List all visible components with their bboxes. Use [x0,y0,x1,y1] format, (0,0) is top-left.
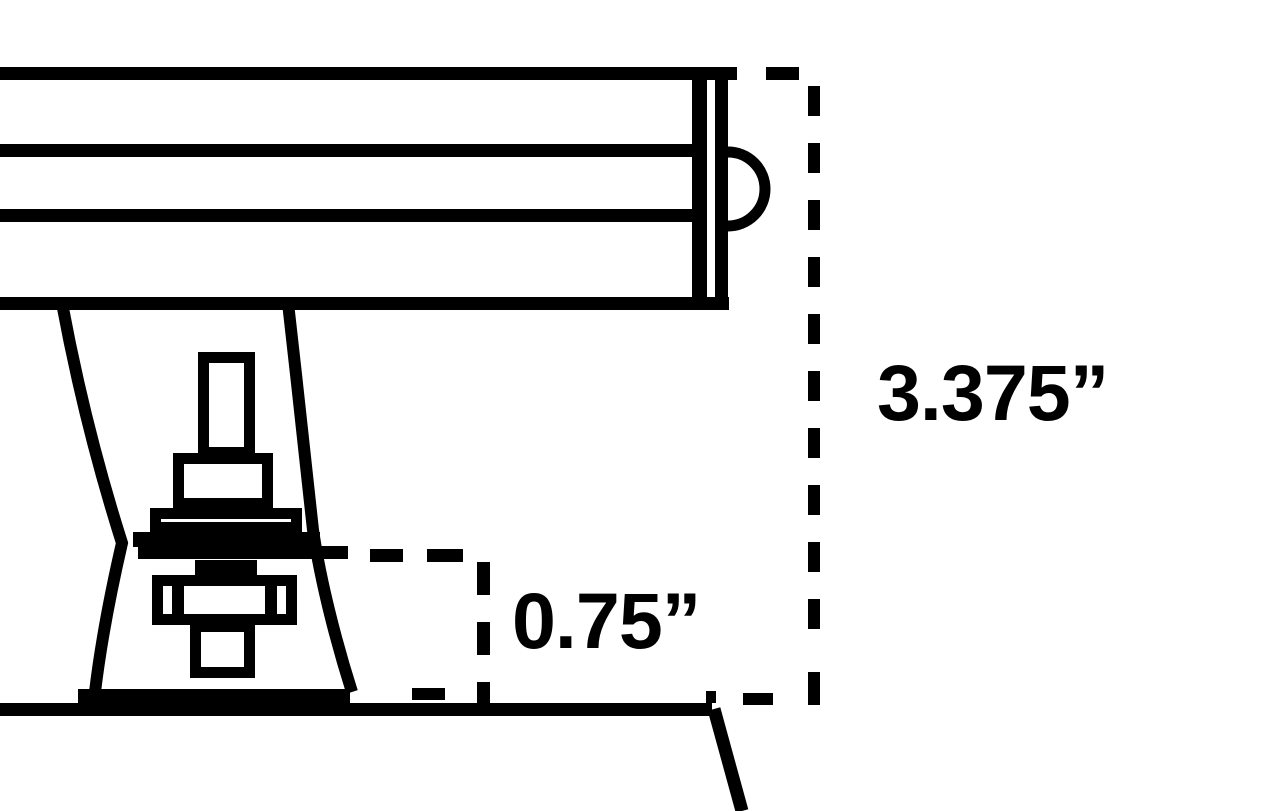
base-and-ground [0,689,742,811]
extension-dash-bottom [412,688,445,700]
ground-end-tick [706,691,716,703]
dimension-corner-dash [808,672,820,705]
dimension-overall-height: 3.375” [743,67,1108,705]
extension-dash-top-2 [427,549,463,562]
bar-top-edge [0,67,737,80]
knob-block [179,459,268,504]
end-cap-inner-line [692,67,707,310]
extension-dash-bottom [743,693,773,705]
ground-line [0,703,712,716]
technical-drawing-canvas: 3.375” 0.75” [0,0,1280,811]
dimension-label-base-height: 0.75” [512,576,700,665]
knuckle-flange [138,546,348,559]
bar-rib-lower [0,209,692,222]
dimension-drawing-svg: 3.375” 0.75” [0,0,1280,811]
clamp-divider-right [265,583,277,614]
bar-rib-upper [0,144,692,157]
surface-break-diagonal [714,709,742,811]
extension-dash-top [766,67,799,80]
bolt-shaft [204,358,250,453]
lower-stem [196,627,250,673]
washer-plate-upper [156,514,297,528]
bar-bottom-edge [0,297,729,310]
dimension-base-height: 0.75” [370,549,700,705]
bell-base-foot [78,689,350,703]
end-cap-outer-line [715,67,728,310]
clamp-divider-left [172,583,184,614]
flange-tab [200,565,253,572]
yoke-left-outline [62,303,122,692]
washer-plate-lower [138,537,316,543]
yoke-right-outline [288,303,352,692]
extension-dash-top-1 [370,549,403,562]
dimension-label-overall-height: 3.375” [877,348,1108,437]
end-cap-latch-bump [728,152,765,226]
fixture-body [0,67,765,310]
